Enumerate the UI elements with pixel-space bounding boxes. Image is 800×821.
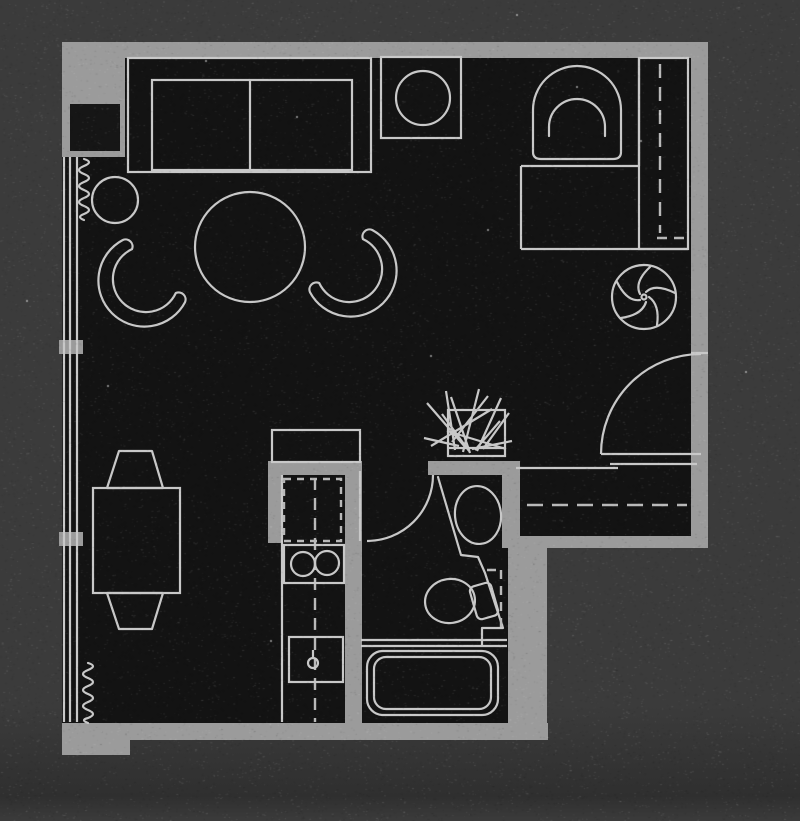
wall-column-core: [70, 104, 120, 151]
wall-bath-right-upper: [502, 461, 520, 541]
wall-bottom-left-block: [62, 723, 130, 755]
wall-bottom: [62, 723, 548, 740]
wall-right-lower: [508, 544, 547, 730]
wall-kitchen-left-stub: [268, 461, 282, 543]
wall-top: [62, 42, 708, 58]
floor-plan-drawing: [0, 0, 800, 821]
floor-plan-scan: [0, 0, 800, 821]
floor-silhouette: [62, 42, 708, 755]
